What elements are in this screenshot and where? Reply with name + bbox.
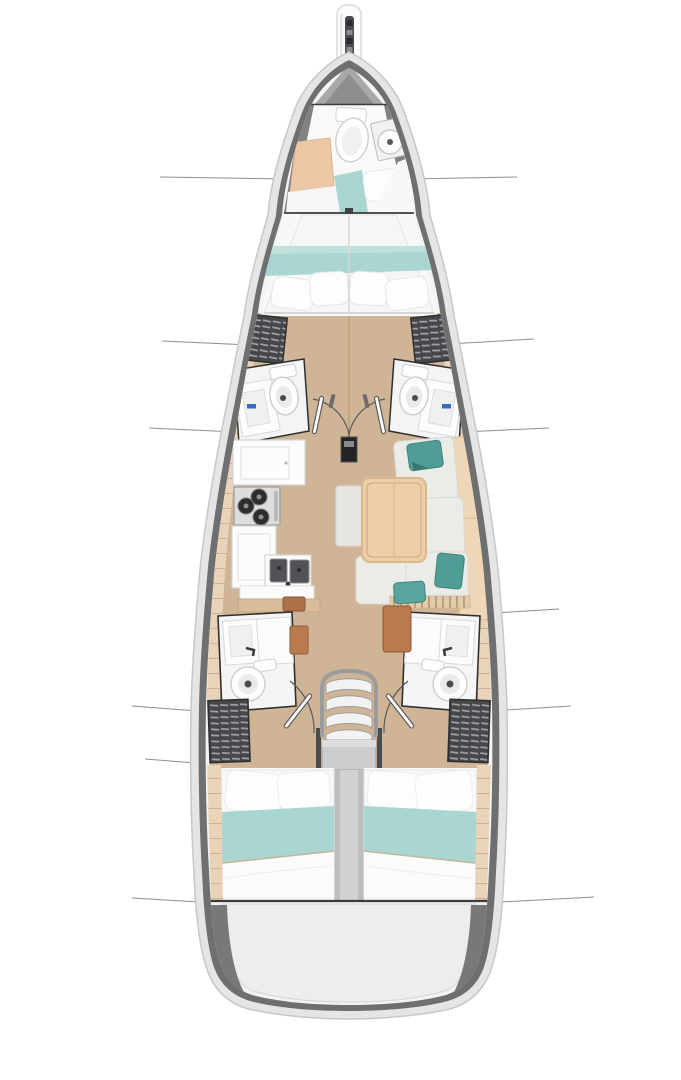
galley-stove (234, 487, 280, 525)
aft-head-port (218, 612, 296, 712)
section-line (160, 177, 290, 179)
companionway-stairs (316, 671, 382, 772)
section-line (494, 609, 559, 613)
section-line (162, 341, 250, 345)
galley-shelf-wood (238, 599, 320, 612)
center-engine-strip (334, 770, 364, 902)
lazarette-lid (222, 904, 476, 1002)
transom (209, 904, 489, 1002)
salon-rug (336, 486, 362, 546)
mast-step (341, 437, 357, 462)
aft-head-starboard (402, 612, 480, 712)
galley-sinks (265, 555, 311, 587)
deck-plan-canvas (0, 0, 681, 1080)
section-line (448, 339, 534, 344)
louver-locker-aft-starboard (448, 699, 490, 762)
interior (207, 64, 494, 1002)
bow-cushion (290, 138, 334, 192)
aft-cabin-port (207, 765, 334, 900)
louver-locker-aft-port (208, 699, 250, 762)
forward-cabin (260, 214, 438, 316)
aft-cabin-starboard (364, 765, 491, 900)
salon-table (362, 478, 426, 562)
deck-plan-drawing (0, 0, 681, 1080)
